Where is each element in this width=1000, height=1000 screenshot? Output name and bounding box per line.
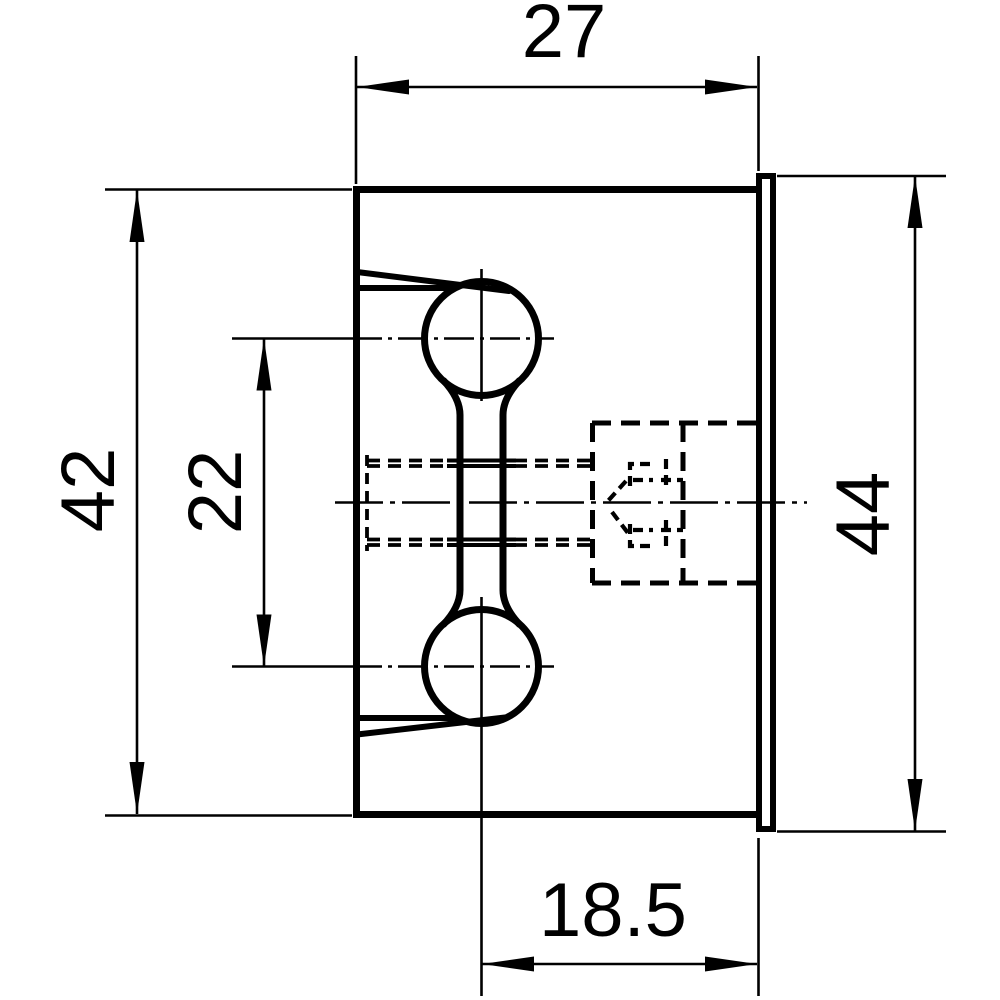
- dimension-drawing: 27 42 22 44 18.5: [0, 0, 1000, 1000]
- dim-label-bottom-width: 18.5: [539, 868, 687, 953]
- arrowhead-left-icon: [482, 957, 534, 972]
- arrowhead-down-icon: [257, 615, 272, 667]
- dim-label-right-height: 44: [821, 472, 906, 557]
- arrowhead-up-icon: [130, 190, 145, 242]
- arrowhead-left-icon: [357, 80, 409, 95]
- arrowhead-up-icon: [257, 339, 272, 391]
- latch-lower-bracket: [630, 524, 653, 546]
- latch-upper-bracket: [630, 464, 653, 486]
- arrowhead-down-icon: [908, 779, 923, 831]
- dimension-left-inner-height: 22: [173, 339, 352, 667]
- dim-label-left-inner-height: 22: [173, 450, 258, 535]
- dimension-bottom-width: 18.5: [482, 838, 759, 996]
- dim-label-top-width: 27: [522, 0, 607, 74]
- dim-label-left-outer-height: 42: [46, 448, 131, 533]
- arrowhead-right-icon: [705, 80, 757, 95]
- dimension-right-height: 44: [777, 176, 946, 832]
- arrowhead-down-icon: [130, 762, 145, 814]
- arrowhead-up-icon: [908, 176, 923, 228]
- latch-upper-diagonal: [607, 481, 626, 502]
- arrowhead-right-icon: [705, 957, 757, 972]
- dimension-top-width: 27: [356, 0, 759, 184]
- technical-drawing-page: 27 42 22 44 18.5: [0, 0, 1000, 1000]
